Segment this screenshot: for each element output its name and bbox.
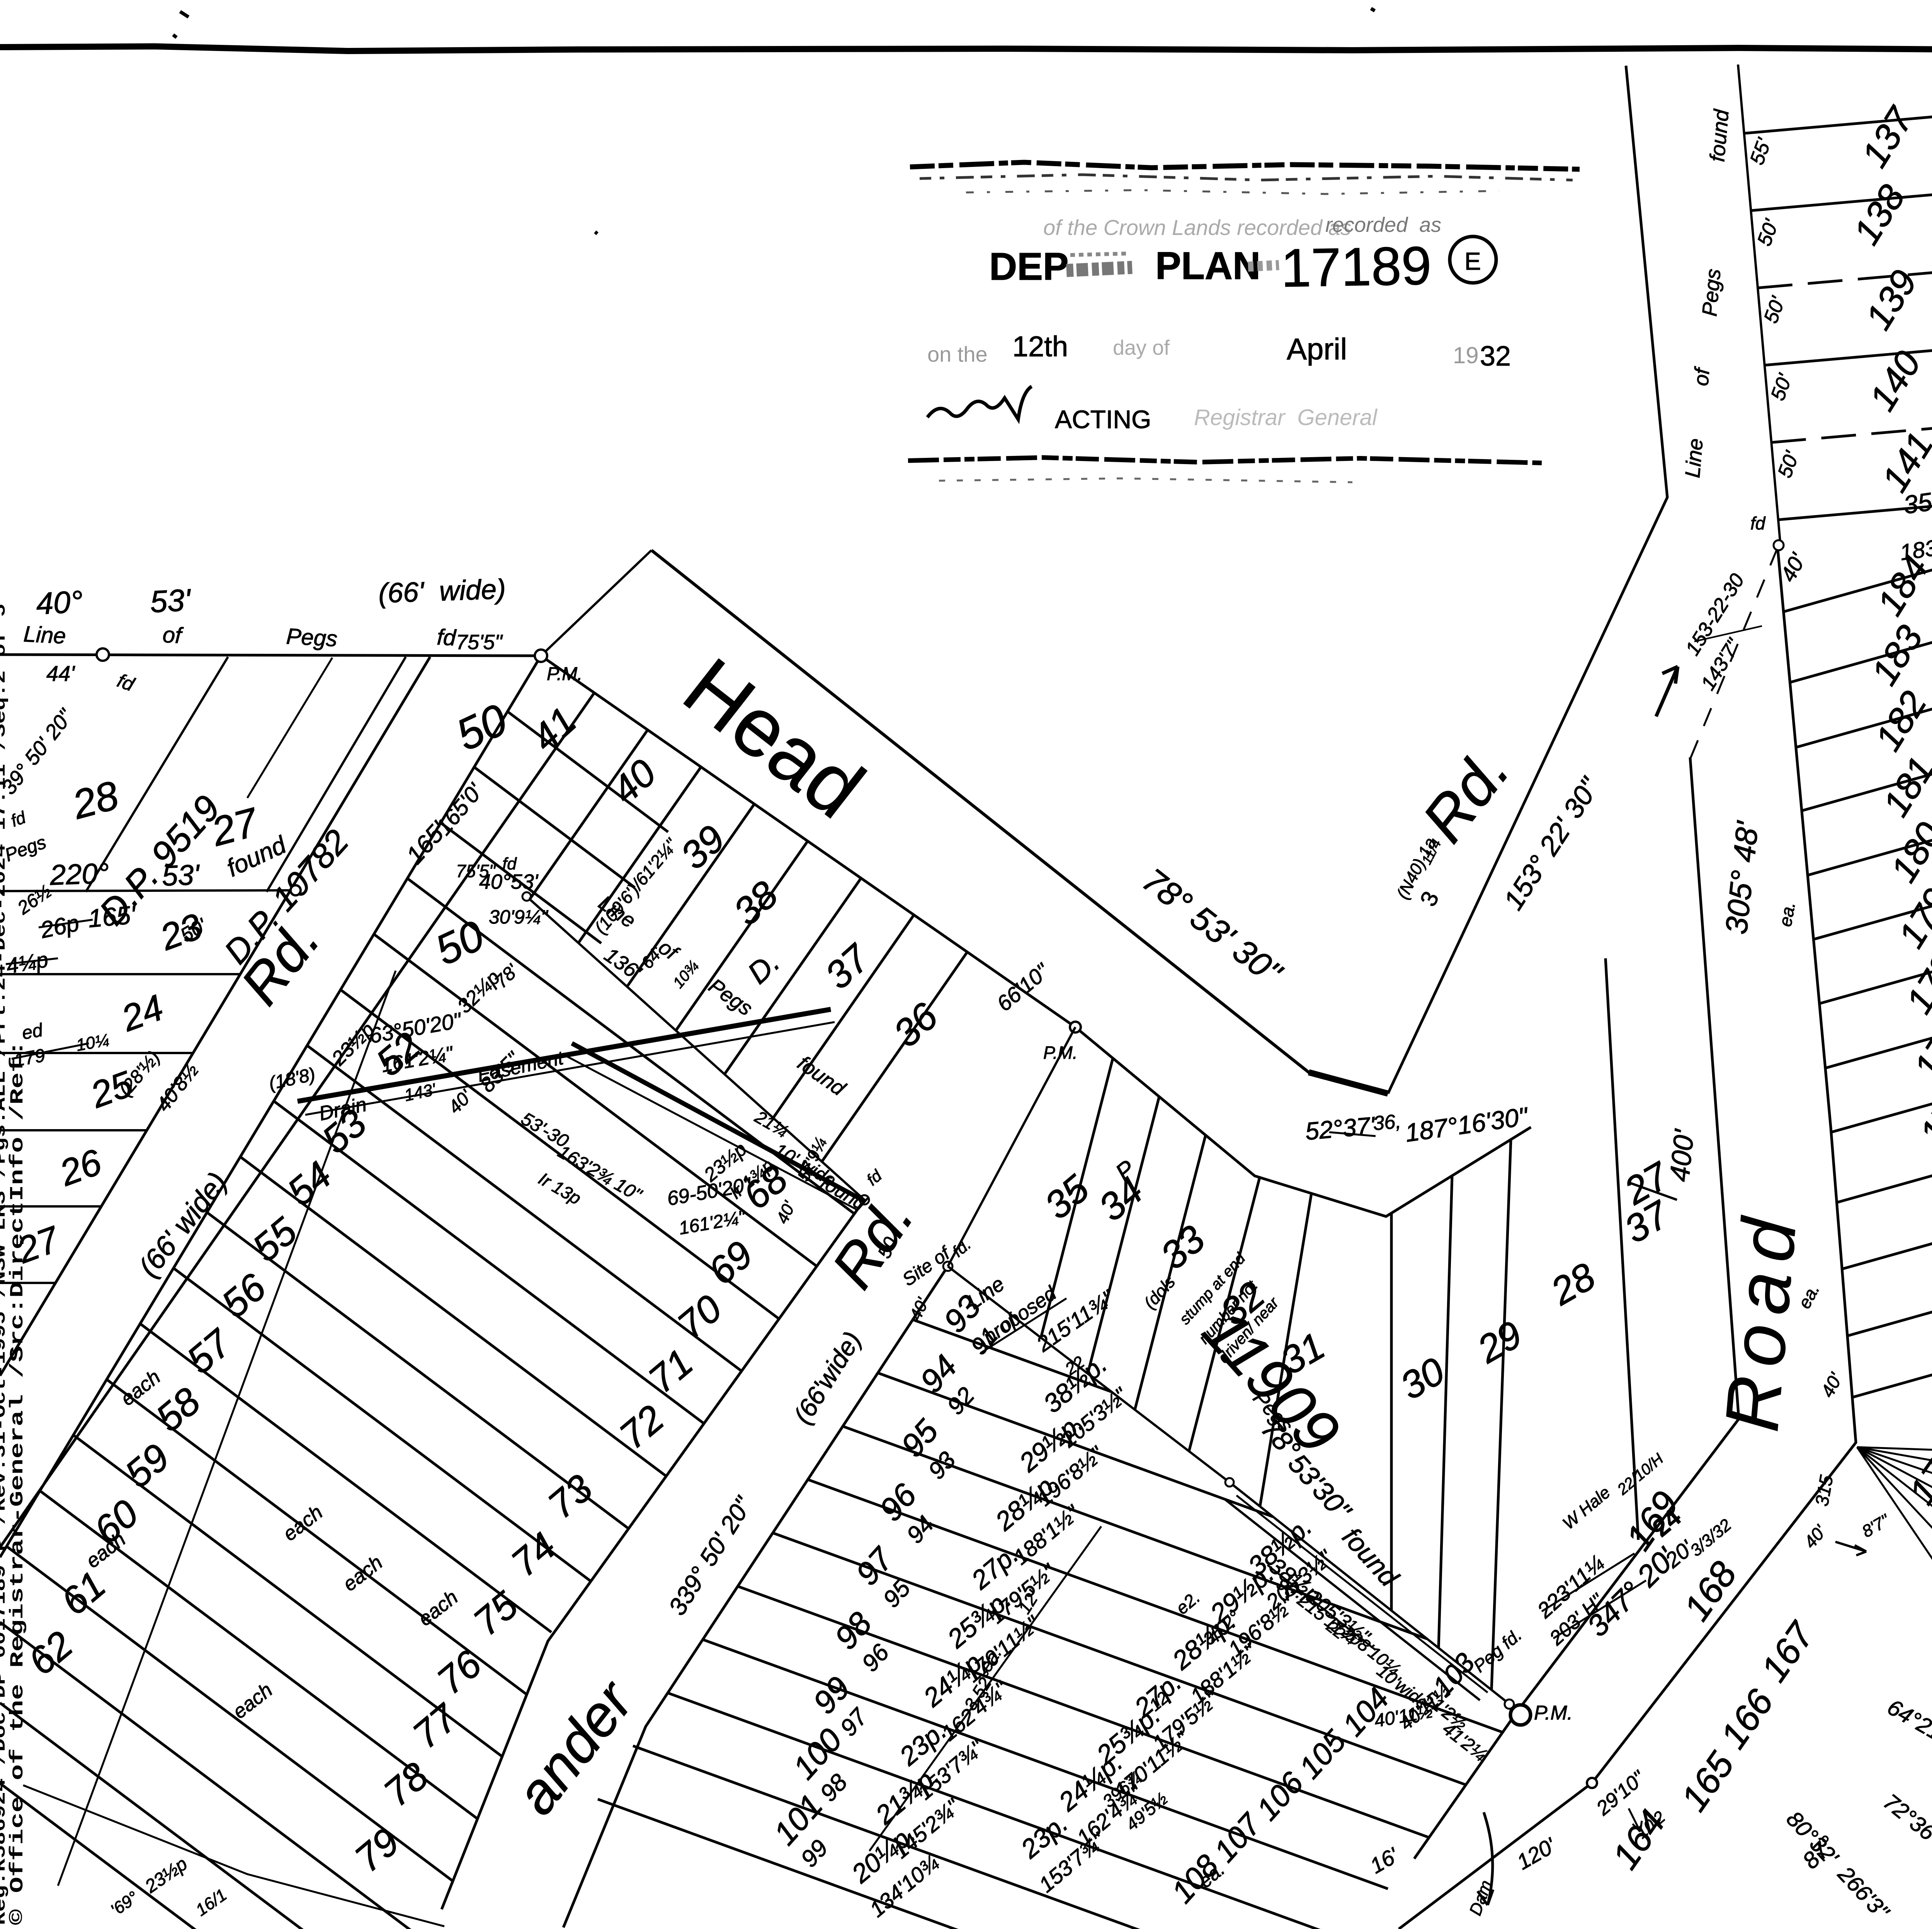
svg-text:P.M.: P.M. <box>1534 1702 1573 1724</box>
svg-text:day of: day of <box>1113 336 1170 359</box>
svg-text:Line: Line <box>1681 437 1708 479</box>
svg-text:40°: 40° <box>35 584 83 621</box>
svg-text:of the Crown Lands recorded as: of the Crown Lands recorded as <box>1043 215 1351 240</box>
svg-text:12th: 12th <box>1012 330 1068 362</box>
svg-text:Pegs: Pegs <box>286 624 338 652</box>
svg-text:165': 165' <box>87 900 138 933</box>
svg-text:ACTING: ACTING <box>1055 405 1151 434</box>
svg-text:19: 19 <box>1453 342 1479 368</box>
svg-text:April: April <box>1287 332 1347 366</box>
svg-text:PLAN: PLAN <box>1155 244 1260 287</box>
svg-text:75'5": 75'5" <box>456 631 503 654</box>
svg-text:on the: on the <box>927 342 988 366</box>
svg-text:found: found <box>1706 108 1733 163</box>
svg-text:recorded as: recorded as <box>1325 213 1441 236</box>
svg-text:53': 53' <box>162 859 201 892</box>
svg-text:ed: ed <box>20 1020 45 1044</box>
svg-text:32: 32 <box>1480 341 1511 372</box>
svg-text:Line: Line <box>23 621 66 649</box>
svg-text:44': 44' <box>46 661 75 686</box>
svg-text:P.M.: P.M. <box>1043 1043 1078 1063</box>
svg-text:ea.: ea. <box>1775 900 1799 928</box>
svg-text:(66' wide): (66' wide) <box>378 574 506 609</box>
svg-text:36,: 36, <box>1372 1110 1402 1135</box>
svg-text:P.M.: P.M. <box>547 664 582 684</box>
svg-text:53': 53' <box>149 582 192 619</box>
svg-text:DEP: DEP <box>989 245 1069 288</box>
svg-text:E: E <box>1464 247 1481 275</box>
svg-text:30'9¼": 30'9¼" <box>489 906 549 928</box>
svg-text:17189: 17189 <box>1281 235 1432 298</box>
svg-text:400': 400' <box>1664 1128 1700 1183</box>
svg-text:fd: fd <box>436 624 457 651</box>
svg-text:220°: 220° <box>49 857 110 891</box>
svg-text:Registrar General: Registrar General <box>1194 405 1378 430</box>
svg-text:fd: fd <box>1750 513 1766 533</box>
svg-text:Pegs: Pegs <box>1698 268 1725 317</box>
